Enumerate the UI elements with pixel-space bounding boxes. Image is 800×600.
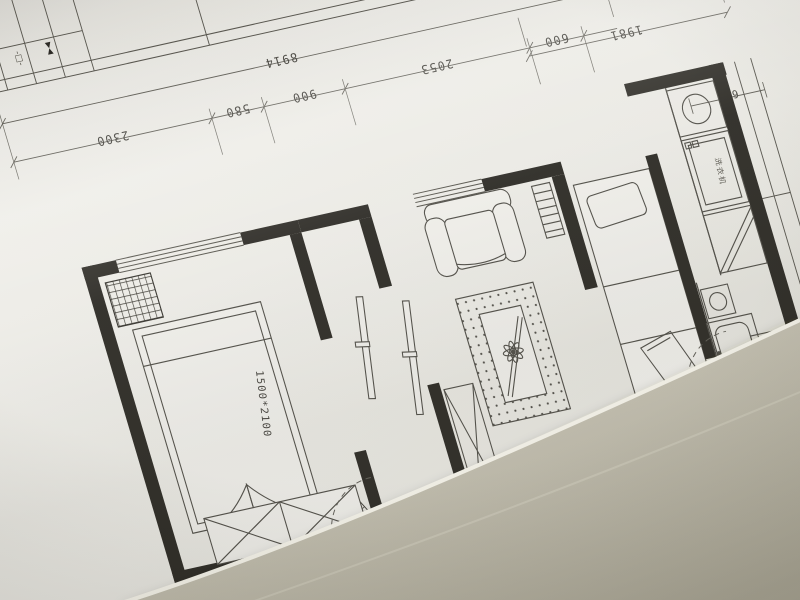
photo-of-floor-plan: 吸顶灯 双头吸顶灯 防水吸顶灯 单管日光灯 排气扇 -○- -○- -●- -□… <box>0 0 800 600</box>
floor-plan-sheet: 吸顶灯 双头吸顶灯 防水吸顶灯 单管日光灯 排气扇 -○- -○- -●- -□… <box>0 0 800 600</box>
